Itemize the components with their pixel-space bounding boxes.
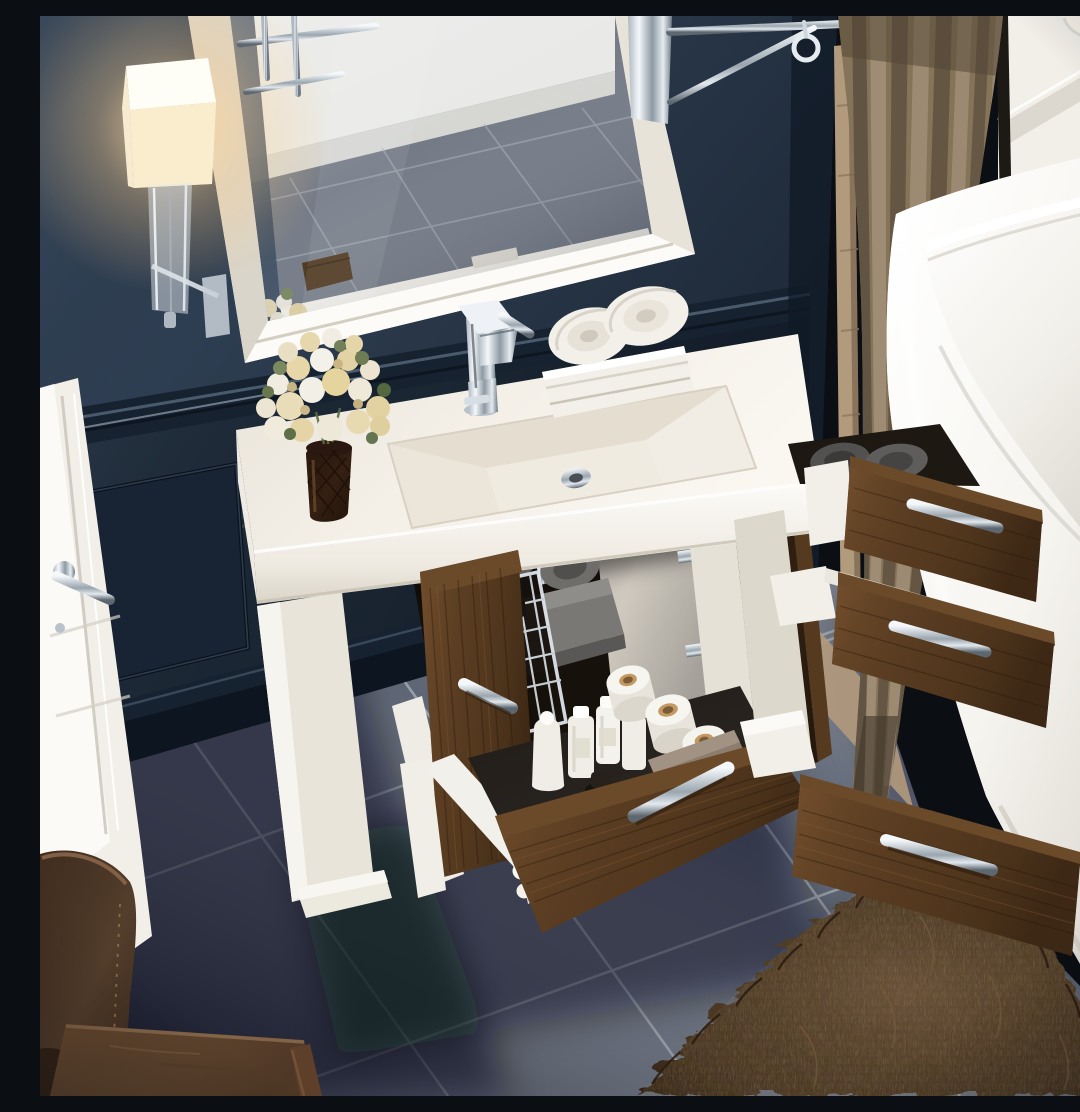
bathroom-scene	[40, 16, 1080, 1096]
bathroom-photo: High-angle photo of a modern bathroom: a…	[40, 16, 1080, 1096]
vignette	[40, 16, 1080, 1096]
